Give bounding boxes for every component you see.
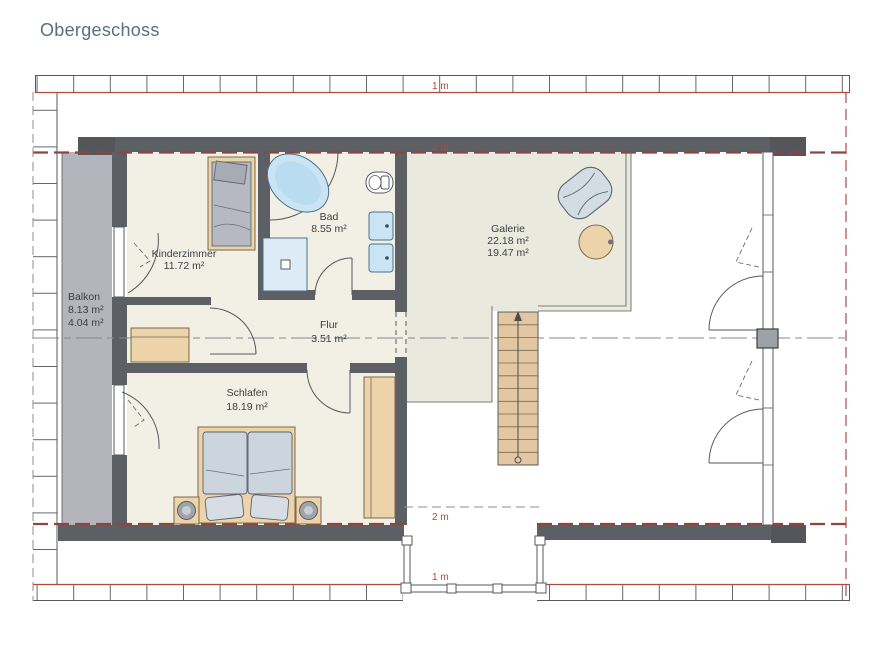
room-area-bad: 8.55 m² bbox=[311, 223, 347, 235]
dim-label-top-2m: 2 m bbox=[432, 142, 449, 153]
room-name-schlafen: Schlafen bbox=[227, 387, 268, 399]
nightstand bbox=[296, 497, 321, 524]
schlafen-north-wall-east bbox=[350, 363, 407, 373]
bad-south-wall-east bbox=[352, 290, 407, 300]
door-swing-gable-lower bbox=[709, 361, 763, 463]
balcony-door-schlafen bbox=[114, 385, 124, 455]
east-partition-wall-upper bbox=[395, 152, 407, 312]
room-area-balkon-1: 8.13 m² bbox=[68, 304, 104, 316]
door-swing-gable-upper bbox=[709, 228, 763, 330]
kinderzimmer-south-wall bbox=[127, 297, 211, 305]
south-wall-east bbox=[537, 525, 806, 540]
room-name-galerie: Galerie bbox=[491, 223, 525, 235]
floor-plan-drawing: Obergeschoss bbox=[0, 0, 870, 660]
sideboard bbox=[131, 328, 189, 362]
room-name-balkon: Balkon bbox=[68, 291, 100, 303]
dim-label-top-1m: 1 m bbox=[432, 81, 449, 92]
schlafen-north-wall-west bbox=[127, 363, 307, 373]
room-area-galerie-1: 22.18 m² bbox=[487, 235, 529, 247]
shower bbox=[263, 238, 307, 291]
round-table bbox=[579, 225, 613, 259]
dormer-side-window bbox=[537, 541, 543, 587]
room-area-schlafen: 18.19 m² bbox=[226, 401, 268, 413]
sink bbox=[369, 212, 393, 240]
toilet bbox=[366, 172, 393, 193]
gable-center-post bbox=[757, 329, 778, 348]
dim-label-bottom-2m: 2 m bbox=[432, 512, 449, 523]
floor-plan-page: Obergeschoss bbox=[0, 0, 870, 660]
dormer-front-window bbox=[404, 585, 543, 592]
room-area-kinderzimmer: 11.72 m² bbox=[164, 260, 205, 272]
east-partition-wall-lower bbox=[395, 357, 407, 525]
south-wall-west bbox=[58, 525, 404, 541]
double-bed bbox=[198, 427, 295, 523]
dormer-side-window bbox=[404, 541, 410, 587]
single-bed bbox=[208, 157, 255, 250]
balcony-door-kinderzimmer bbox=[114, 227, 124, 297]
sink bbox=[369, 244, 393, 272]
room-name-flur: Flur bbox=[320, 319, 339, 331]
nightstand bbox=[174, 497, 199, 524]
glass-gable-wall bbox=[757, 152, 778, 525]
room-area-flur: 3.51 m² bbox=[311, 333, 347, 345]
dim-label-bottom-1m: 1 m bbox=[432, 572, 449, 583]
room-name-bad: Bad bbox=[320, 211, 339, 223]
dormer bbox=[401, 536, 546, 593]
wardrobe bbox=[364, 377, 395, 518]
balkon-label: Balkon 8.13 m² 4.04 m² bbox=[68, 291, 104, 329]
room-area-balkon-2: 4.04 m² bbox=[68, 317, 104, 329]
page-title: Obergeschoss bbox=[40, 20, 160, 40]
room-name-kinderzimmer: Kinderzimmer bbox=[152, 248, 217, 260]
room-area-galerie-2: 19.47 m² bbox=[487, 247, 529, 259]
